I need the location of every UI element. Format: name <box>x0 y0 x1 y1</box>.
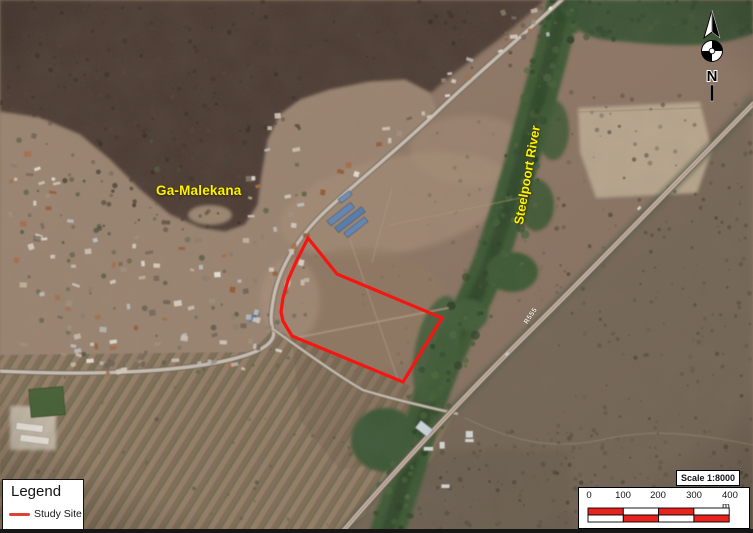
settlement-label: Ga-Malekana <box>156 183 242 198</box>
map-figure: Ga-Malekana Steelpoort River R555 N Lege… <box>0 0 753 533</box>
study-site-swatch <box>9 513 30 516</box>
north-arrow-tail <box>710 85 713 101</box>
scale-tick: 200 <box>650 490 666 501</box>
north-arrow-label: N <box>707 68 718 85</box>
scale-tick: 0 <box>586 490 591 501</box>
legend-item-label: Study Site <box>34 508 82 520</box>
scale-title: Scale 1:8000 <box>676 470 740 486</box>
satellite-imagery <box>0 0 753 533</box>
north-arrow-left-fin <box>704 10 712 38</box>
legend-title: Legend <box>11 483 83 500</box>
map-border-bottom <box>0 529 753 533</box>
vignette <box>0 0 753 533</box>
scale-bar: 0 100 200 300 400 m <box>578 487 750 529</box>
scale-bar-blocks <box>587 507 732 524</box>
legend: Legend Study Site <box>2 479 84 531</box>
north-arrow-icon: N <box>695 6 729 102</box>
scale-tick: 100 <box>615 490 631 501</box>
compass-rose-center <box>709 48 715 54</box>
scale-tick: 300 <box>686 490 702 501</box>
north-arrow-right-fin <box>712 10 720 38</box>
legend-item-study-site: Study Site <box>9 508 83 520</box>
